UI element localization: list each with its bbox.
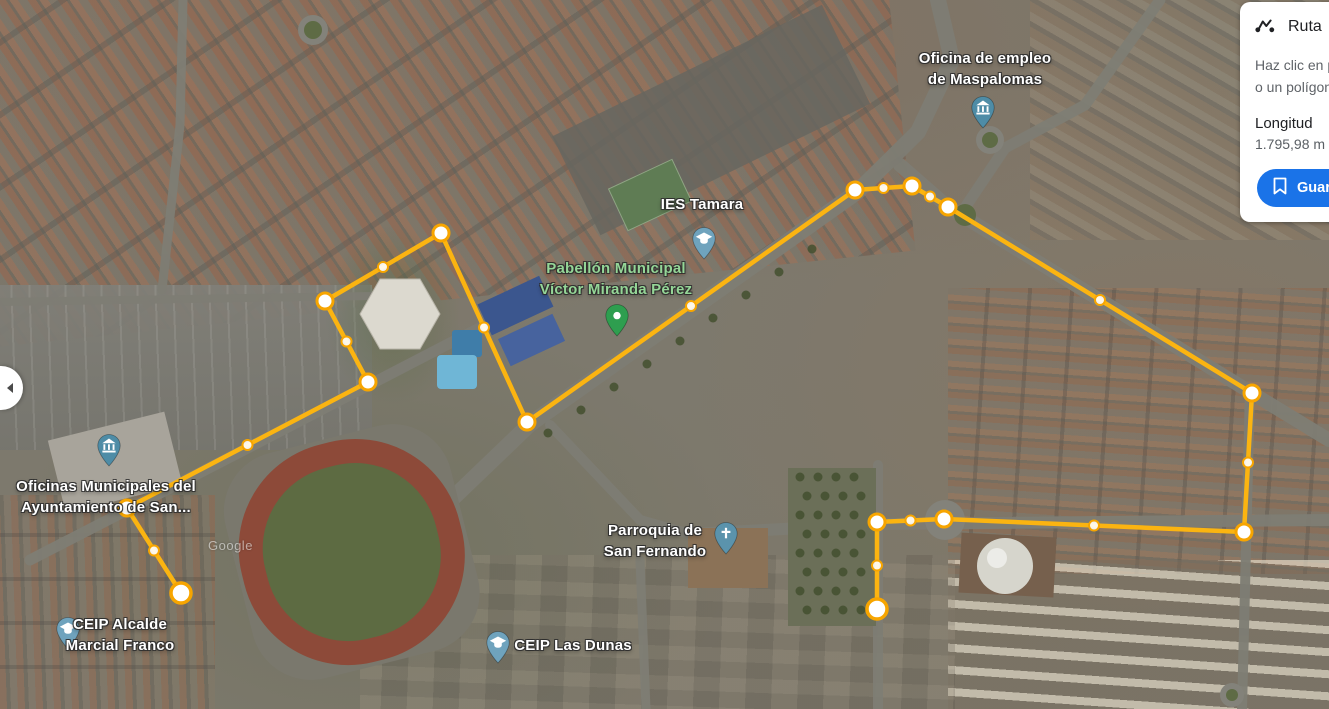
map-texture-zone xyxy=(360,555,955,709)
map-texture-zone xyxy=(325,225,460,405)
institution-pin-icon[interactable] xyxy=(970,95,996,129)
map-label-ceip-alcalde: CEIP Alcalde Marcial Franco xyxy=(66,614,175,656)
help-text-line1: Haz clic en p xyxy=(1255,54,1329,76)
google-watermark: Google xyxy=(208,538,253,553)
map-label-pabellon: Pabellón Municipal Víctor Miranda Pérez xyxy=(540,258,692,300)
map-label-ies-tamara: IES Tamara xyxy=(661,194,744,215)
map-label-parroquia: Parroquia de San Fernando xyxy=(604,520,706,562)
route-polyline-icon xyxy=(1255,16,1275,38)
church-pin-icon[interactable] xyxy=(713,521,739,555)
map-label-ceip-las-dunas: CEIP Las Dunas xyxy=(514,635,632,656)
length-value: 1.795,98 m xyxy=(1255,136,1329,152)
map-texture-zone xyxy=(0,495,215,709)
satellite-map[interactable]: Google Oficina de empleo de M xyxy=(0,0,1329,709)
help-text-line2: o un polígon xyxy=(1255,76,1329,98)
map-texture-zone xyxy=(948,560,1329,709)
route-polyline-layer[interactable] xyxy=(0,0,1329,709)
school-pin-icon[interactable] xyxy=(691,226,717,260)
route-info-panel: Ruta Haz clic en p o un polígon Longitud… xyxy=(1240,2,1329,222)
map-texture-zone xyxy=(0,0,915,348)
save-button-label: Guardar xyxy=(1297,180,1329,196)
green-poi-pin-icon[interactable] xyxy=(604,303,630,337)
institution-pin-icon[interactable] xyxy=(96,433,122,467)
school-pin-icon[interactable] xyxy=(485,630,511,664)
map-label-oficinas-municipales: Oficinas Municipales del Ayuntamiento de… xyxy=(16,476,196,518)
panel-help-text: Haz clic en p o un polígon xyxy=(1255,54,1329,98)
length-label: Longitud xyxy=(1255,115,1329,132)
map-label-oficina-empleo: Oficina de empleo de Maspalomas xyxy=(919,48,1052,90)
panel-title: Ruta xyxy=(1288,18,1322,36)
bookmark-icon xyxy=(1272,177,1288,199)
save-button[interactable]: Guardar xyxy=(1257,169,1329,207)
chevron-left-icon xyxy=(7,383,13,393)
map-landmarks-layer xyxy=(0,0,1329,709)
map-texture-zone xyxy=(948,288,1329,574)
map-texture-zone xyxy=(0,285,372,450)
